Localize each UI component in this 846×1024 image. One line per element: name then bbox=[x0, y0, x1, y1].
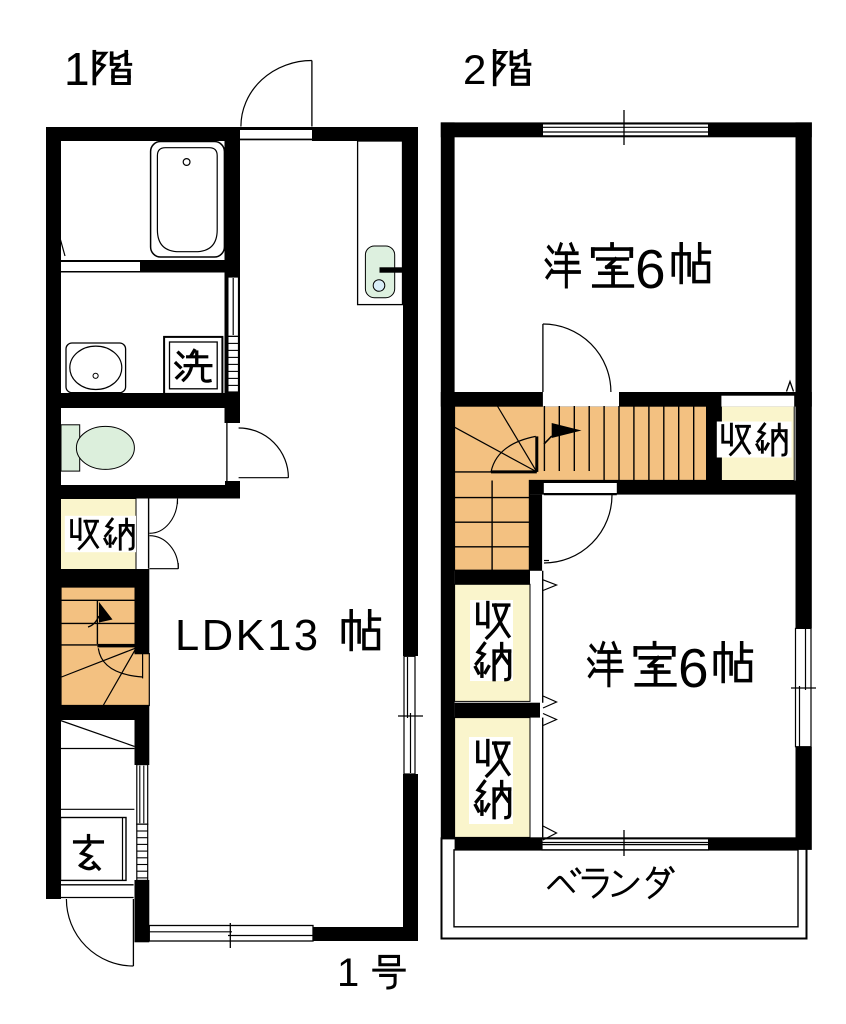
svg-text:6: 6 bbox=[635, 238, 666, 300]
svg-text:1: 1 bbox=[337, 951, 359, 995]
svg-text:1: 1 bbox=[64, 43, 90, 95]
svg-text:LDK13: LDK13 bbox=[175, 612, 321, 660]
svg-text:2: 2 bbox=[463, 46, 486, 93]
svg-text:6: 6 bbox=[678, 637, 709, 699]
